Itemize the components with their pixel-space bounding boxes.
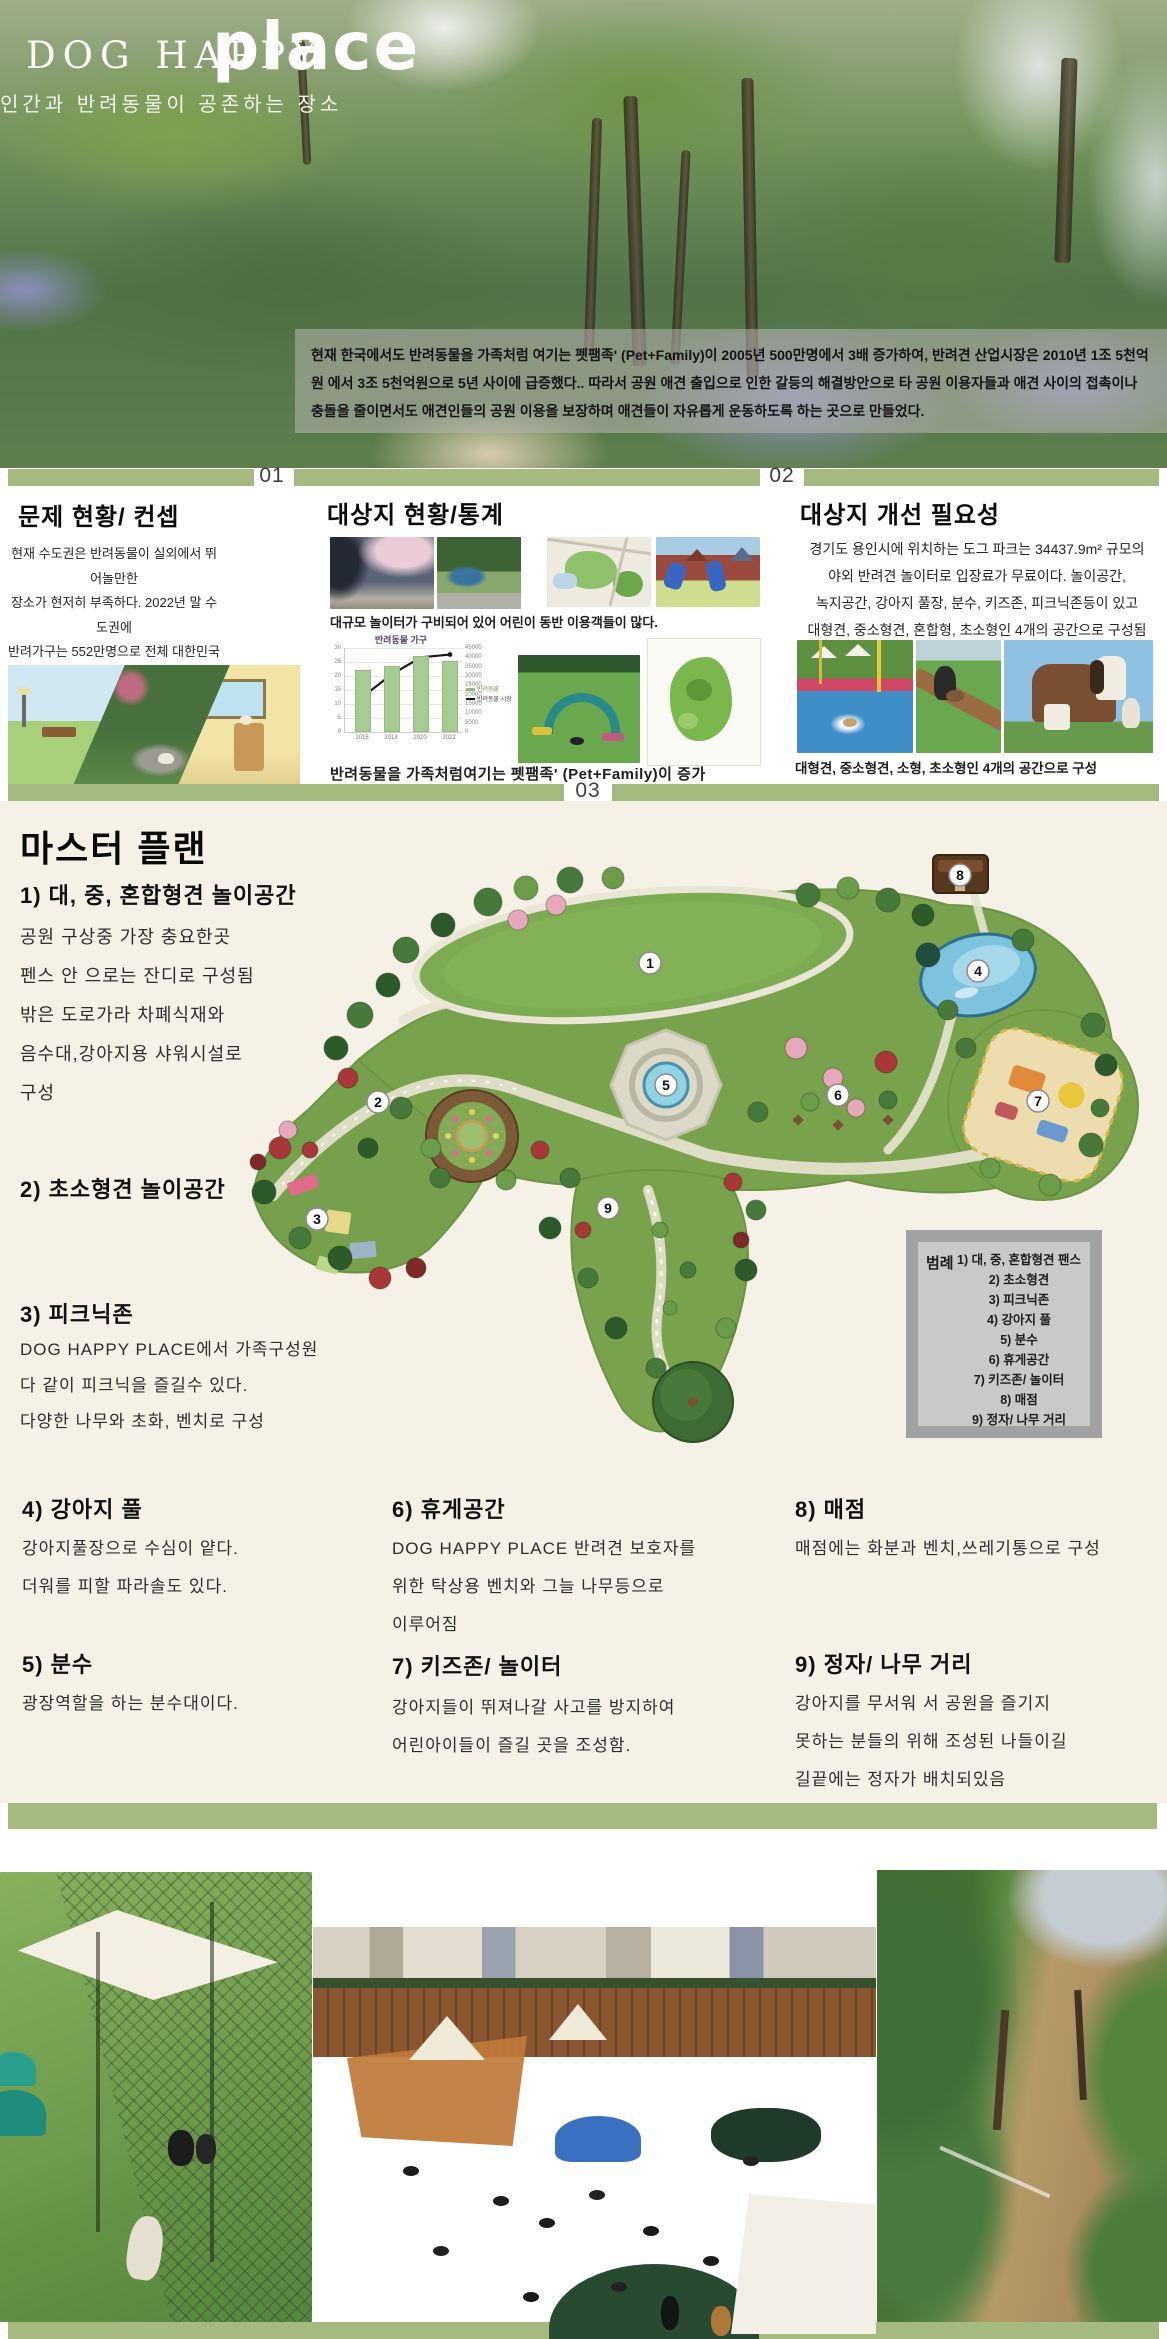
- need-photo-dog-house: [1004, 640, 1153, 753]
- site-caption-top: 대규모 놀이터가 구비되어 있어 어린이 동반 이용객들이 많다.: [330, 612, 750, 631]
- plan-item-1-body: 공원 구상중 가장 충요한곳 펜스 안 으로는 잔디로 구성됨 밖은 도로가라 …: [20, 918, 350, 1113]
- plan-badge: 1: [639, 952, 661, 974]
- legend-item: 4) 강아지 풀: [952, 1310, 1086, 1330]
- tree-trunk: [623, 96, 646, 366]
- chart-legend-line-label: 반려동물 시장: [477, 697, 512, 703]
- svg-text:7: 7: [1034, 1093, 1042, 1109]
- svg-text:1: 1: [646, 955, 654, 971]
- legend-item: 9) 정자/ 나무 거리: [952, 1410, 1086, 1430]
- plan-item-7-body: 강아지들이 뛰져나갈 사고를 방지하여 어린아이들이 즐길 곳을 조성함.: [392, 1689, 762, 1765]
- plan-legend-label: 범례: [926, 1252, 954, 1273]
- plan-badge: 4: [967, 960, 989, 982]
- svg-text:5: 5: [662, 1077, 670, 1093]
- legend-item: 6) 휴게공간: [952, 1350, 1086, 1370]
- plan-item-8-body: 매점에는 화분과 벤치,쓰레기통으로 구성: [795, 1530, 1167, 1568]
- section-title-problem: 문제 현황/ 컨셉: [18, 497, 179, 532]
- need-body-text: 경기도 용인시에 위치하는 도그 파크는 34437.9m² 규모의 야외 반려…: [790, 536, 1164, 644]
- chart-bar: [355, 670, 371, 732]
- section-number-03: 03: [566, 779, 610, 803]
- hero-forest-photo: DOG HAPPY place 인간과 반려동물이 공존하는 장소 현재 한국에…: [0, 0, 1167, 468]
- svg-text:9: 9: [604, 1200, 612, 1216]
- divider-bar: [612, 784, 1159, 801]
- plan-item-2-heading: 2) 초소형견 놀이공간: [20, 1172, 226, 1204]
- divider-bar: [294, 469, 760, 486]
- plan-badge: 7: [1027, 1090, 1049, 1112]
- chart-title: 반려동물 가구: [326, 633, 476, 646]
- plan-item-7-heading: 7) 키즈존/ 놀이터: [392, 1649, 562, 1681]
- plan-item-9-heading: 9) 정자/ 나무 거리: [795, 1647, 972, 1679]
- svg-text:6: 6: [834, 1087, 842, 1103]
- footer-photo-dog-run: [0, 1872, 312, 2322]
- need-caption: 대형견, 중소형견, 소형, 초소형인 4개의 공간으로 구성: [795, 757, 1165, 777]
- plan-item-9-body: 강아지를 무서워 서 공원을 즐기지 못하는 분들의 위해 조성된 나들이길 길…: [795, 1685, 1167, 1799]
- footer-divider-bar: [8, 1803, 1157, 1829]
- plan-item-1-heading: 1) 대, 중, 혼합형견 놀이공간: [20, 878, 297, 910]
- pet-household-chart: 반려동물 가구 반려동물 반려동물 시장 0510152025300500010…: [326, 633, 522, 761]
- legend-item: 2) 초소형견: [952, 1270, 1086, 1290]
- plan-item-4-heading: 4) 강아지 풀: [22, 1492, 143, 1524]
- legend-item: 1) 대, 중, 혼합형견 팬스: [952, 1250, 1086, 1270]
- footer-photo-aerial-park: [313, 1866, 876, 2339]
- legend-item: 7) 키즈존/ 놀이터: [952, 1370, 1086, 1390]
- site-map-yongin: [647, 638, 761, 766]
- tree-trunk: [584, 118, 602, 353]
- plan-badge: 3: [306, 1208, 328, 1230]
- footer-photo-tree-path: [877, 1870, 1167, 2322]
- svg-text:2: 2: [374, 1094, 382, 1110]
- plan-item-3-body: DOG HAPPY PLACE에서 가족구성원 다 같이 피크닉을 즐길수 있다…: [20, 1332, 360, 1440]
- legend-item: 5) 분수: [952, 1330, 1086, 1350]
- plan-item-5-heading: 5) 분수: [22, 1647, 93, 1679]
- page-title-accent: place: [212, 8, 420, 85]
- legend-item: 3) 피크닉존: [952, 1290, 1086, 1310]
- master-plan-title: 마스터 플랜: [20, 820, 208, 872]
- poster-board: DOG HAPPY place 인간과 반려동물이 공존하는 장소 현재 한국에…: [0, 0, 1167, 2339]
- chart-bar: [442, 661, 458, 732]
- legend-item: 8) 매점: [952, 1390, 1086, 1410]
- plan-item-3-heading: 3) 피크닉존: [20, 1297, 134, 1329]
- intro-text-box: 현재 한국에서도 반려동물을 가족처럼 여기는 펫팸족' (Pet+Family…: [295, 329, 1167, 433]
- section-number-01: 01: [252, 464, 292, 488]
- plan-item-4-body: 강아지풀장으로 수심이 얕다. 더워를 피할 파라솔도 있다.: [22, 1530, 362, 1606]
- divider-bar: [8, 469, 254, 486]
- page-subtitle: 인간과 반려동물이 공존하는 장소: [0, 88, 342, 117]
- svg-text:3: 3: [313, 1211, 321, 1227]
- need-photo-dog-pool: [797, 640, 913, 753]
- plan-item-8-heading: 8) 매점: [795, 1492, 866, 1524]
- plan-item-6-heading: 6) 휴게공간: [392, 1492, 506, 1524]
- plan-badge: 5: [655, 1074, 677, 1096]
- section-title-site: 대상지 현황/통계: [327, 495, 504, 530]
- site-photo-cherry-blossom: [330, 537, 434, 609]
- section-title-need: 대상지 개선 필요성: [800, 495, 1000, 530]
- plan-item-6-body: DOG HAPPY PLACE 반려견 보호자를 위한 탁상용 벤치와 그늘 나…: [392, 1530, 762, 1644]
- chart-bar: [384, 666, 400, 732]
- divider-bar: [8, 784, 564, 801]
- chart-bar: [413, 656, 429, 732]
- site-photo-park-map: [547, 537, 651, 607]
- tree-trunk: [1054, 58, 1077, 263]
- chart-plot-area: [344, 648, 463, 733]
- svg-text:8: 8: [956, 867, 964, 883]
- plan-badge: 9: [597, 1197, 619, 1219]
- plan-item-5-body: 광장역할을 하는 분수대이다.: [22, 1685, 362, 1723]
- need-photo-dog-ramp: [916, 640, 1001, 753]
- site-photo-dog-agility: [518, 655, 640, 763]
- plan-badge: 6: [827, 1084, 849, 1106]
- svg-text:4: 4: [974, 963, 982, 979]
- concept-illustration: [8, 665, 300, 787]
- site-photo-entrance: [437, 537, 521, 609]
- site-photo-playground: [656, 537, 760, 607]
- plan-badge: 8: [949, 864, 971, 886]
- divider-bar: [804, 469, 1159, 486]
- plan-legend-items: 1) 대, 중, 혼합형견 팬스 2) 초소형견 3) 피크닉존 4) 강아지 …: [952, 1250, 1086, 1430]
- section-number-02: 02: [762, 464, 802, 488]
- site-caption-bottom: 반려동물을 가족처럼여기는 펫팸족' (Pet+Family)이 증가: [330, 763, 760, 784]
- plan-badge: 2: [367, 1091, 389, 1113]
